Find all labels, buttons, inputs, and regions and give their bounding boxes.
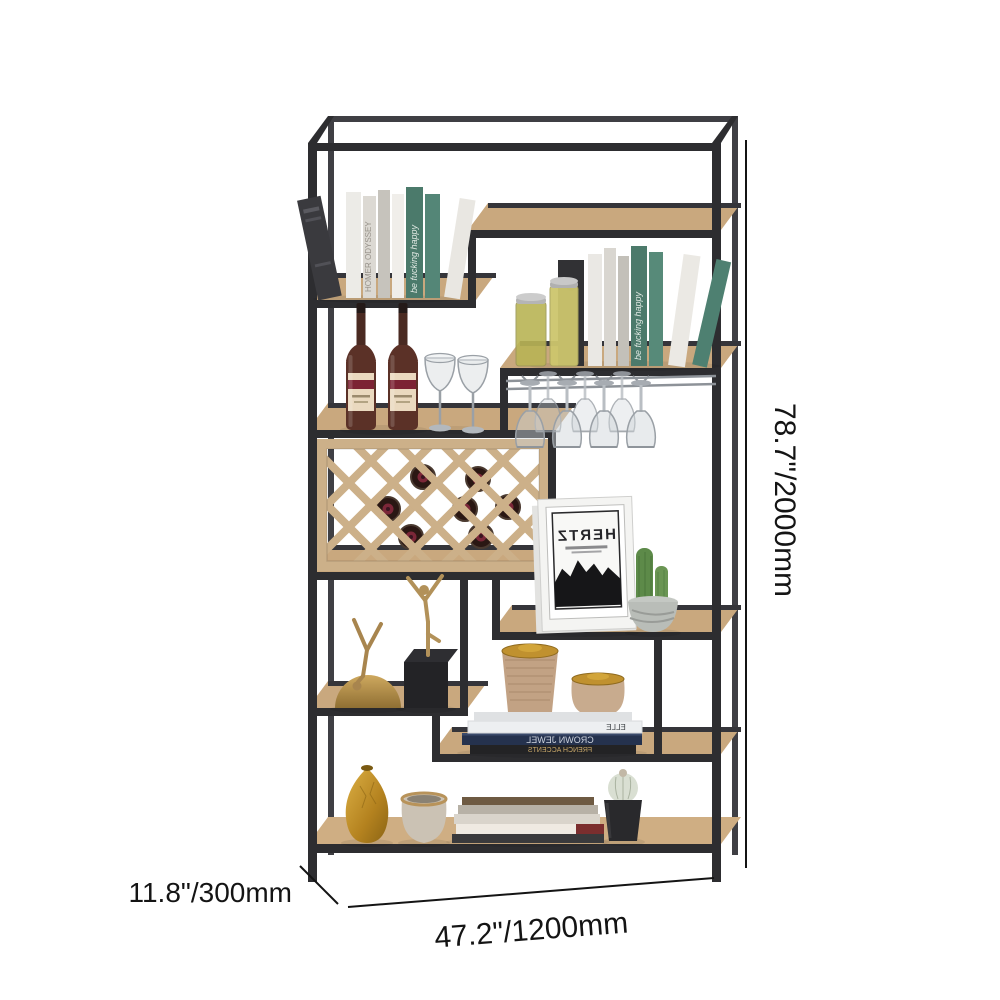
ribbed-vase [502,644,558,712]
depth-dimension-line [300,866,338,904]
width-dimension-label: 47.2"/1200mm [433,906,629,954]
gold-dome-base [335,675,401,708]
glass-jar-2 [550,277,578,366]
stemware-rack [506,371,716,447]
frame-print-title: HERTZ [556,526,617,545]
round-vase [571,673,624,712]
handstand-figurine [354,620,381,682]
product-dimension-diagram: HOMER ODYSSEY be fucking happy be fuckin… [0,0,1000,1000]
cactus-pot [628,548,678,632]
green-book-spine-text: be fucking happy [409,224,419,293]
width-dimension-line [348,878,714,907]
brass-figurines [330,576,458,713]
depth-dimension-label: 11.8"/300mm [128,877,292,908]
wine-bottle [346,303,376,430]
gold-vase [346,765,389,843]
white-album-title: ELLE [606,723,626,732]
books-upper-left: HOMER ODYSSEY be fucking happy [297,187,475,303]
art-print-frame: HERTZ [532,496,637,633]
black-book-title: FRENCH ACCENTS [528,747,593,754]
etagere-illustration: HOMER ODYSSEY be fucking happy be fuckin… [0,0,1000,1000]
black-pot-cactus [604,769,642,841]
picture-frame-and-cactus: HERTZ [531,496,681,637]
glass-jar [516,293,546,366]
navy-book-title: CROWN JEWEL [526,735,594,745]
white-book-spine-text: HOMER ODYSSEY [364,221,373,292]
height-dimension-label: 78.7"/2000mm [768,403,801,597]
black-cube-pedestal [404,662,448,708]
book-stack [452,797,604,843]
vases-on-books: FRENCH ACCENTS CROWN JEWEL ELLE [457,644,647,758]
wine-bottle [388,303,418,430]
green-book-spine-text-2: be fucking happy [633,291,643,360]
